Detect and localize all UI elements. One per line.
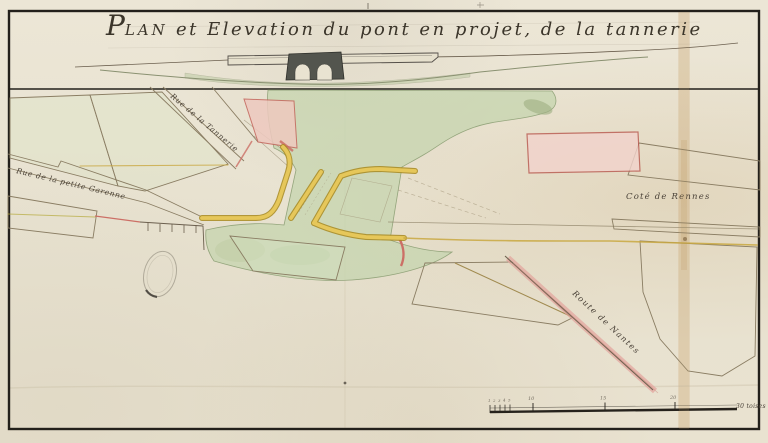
bridge-arch-left xyxy=(295,64,310,80)
elevation-road-right xyxy=(432,43,738,57)
plan-view: Rue de la Tannerie Rue de la petite Gare… xyxy=(8,87,760,393)
corner-building-plot xyxy=(244,99,297,148)
scale-tick-15: 15 xyxy=(600,396,606,402)
scale-tick-1: 1 xyxy=(488,398,491,403)
route-de-nantes-road xyxy=(505,256,658,393)
title-smallcaps: LAN xyxy=(125,21,168,39)
fold-stain-overlay xyxy=(679,12,689,429)
ink-speck2 xyxy=(344,382,347,385)
plan-drawing: Rue de la Tannerie Rue de la petite Gare… xyxy=(0,0,768,443)
scale-bar: 1 2 3 4 5 10 15 20 30 toises xyxy=(488,395,766,413)
quay-wall-ticks xyxy=(140,222,204,250)
elevation-bridge-masonry xyxy=(286,52,344,80)
elevation-road-left xyxy=(75,60,228,67)
scale-tick-2: 2 xyxy=(492,398,496,403)
rennes-building-plot xyxy=(527,132,640,173)
drawing-sheet: PLAN et Elevation du pont en projet, de … xyxy=(0,0,768,443)
scale-tick-5: 5 xyxy=(508,398,511,403)
seal-smudge xyxy=(146,290,157,297)
title-rest: et Elevation du pont en projet, de la ta… xyxy=(168,19,703,40)
title-initial: P xyxy=(106,9,125,42)
scale-bar-line xyxy=(490,409,737,412)
field-boundary-line xyxy=(455,263,570,316)
direction-label-cote-de-rennes: Coté de Rennes xyxy=(626,191,711,202)
elevation-view xyxy=(75,43,738,87)
scale-unit-label: 30 toises xyxy=(736,403,766,410)
scale-tick-10: 10 xyxy=(528,396,535,402)
scale-tick-3: 3 xyxy=(498,398,501,403)
scale-tick-20: 20 xyxy=(669,395,677,401)
scale-tick-4: 4 xyxy=(502,398,506,403)
bridge-arch-right xyxy=(317,64,332,80)
embossed-oval-seal xyxy=(139,248,181,300)
drawing-title: PLAN et Elevation du pont en projet, de … xyxy=(106,8,703,44)
rennes-road-yellow-line xyxy=(404,238,757,245)
rennes-road-line xyxy=(388,222,760,229)
